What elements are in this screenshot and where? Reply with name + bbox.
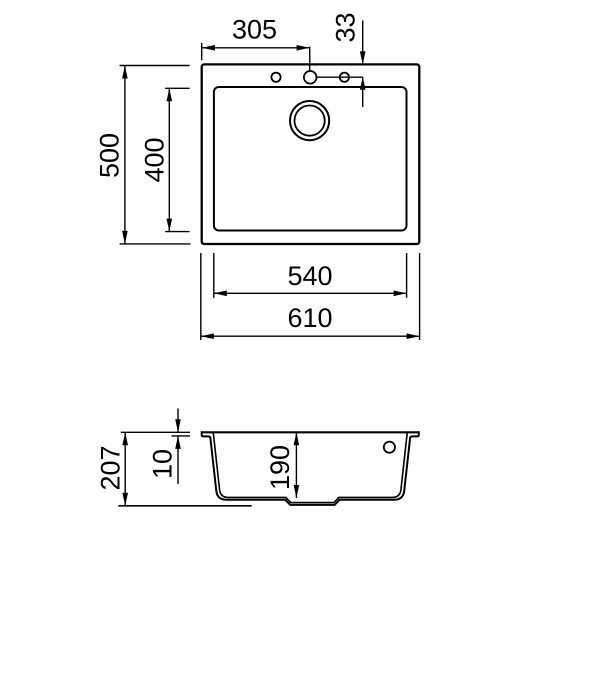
svg-text:500: 500 [94, 133, 124, 178]
svg-text:305: 305 [232, 14, 277, 44]
svg-text:610: 610 [287, 303, 332, 333]
svg-text:207: 207 [96, 445, 126, 490]
svg-text:10: 10 [147, 449, 177, 479]
svg-text:400: 400 [139, 137, 169, 182]
svg-text:33: 33 [330, 12, 360, 42]
svg-text:190: 190 [265, 445, 295, 490]
svg-text:540: 540 [287, 261, 332, 291]
